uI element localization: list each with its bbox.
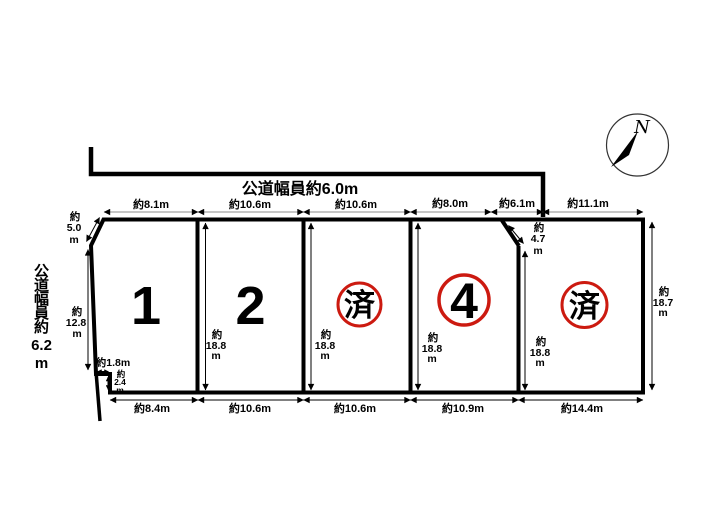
svg-text:6.2: 6.2 [31, 337, 52, 354]
dim-bottom-4: 約10.9m [442, 401, 484, 415]
svg-text:4: 4 [450, 273, 478, 329]
plot-2-number: 2 [235, 276, 265, 336]
svg-text:5.0: 5.0 [67, 222, 82, 234]
plot-layout-diagram: 約8.1m 約10.6m 約10.6m 約8.0m 約6.1m 約11.1m 約… [0, 0, 705, 525]
right-depth-dim-label: 約 18.7 m [653, 285, 674, 319]
svg-text:m: m [116, 385, 124, 395]
svg-text:m: m [658, 307, 667, 319]
dim-top-3: 約10.6m [335, 197, 377, 211]
nw-corner-dim-label: 約 5.0 m [67, 210, 82, 246]
dim-bottom-1: 約8.4m [134, 401, 170, 415]
compass: N [607, 114, 669, 176]
svg-text:済: 済 [569, 289, 601, 324]
svg-text:m: m [320, 350, 329, 362]
dim-bottom-3: 約10.6m [334, 401, 376, 415]
svg-text:4.7: 4.7 [531, 233, 546, 245]
dim-bottom-2: 約10.6m [229, 401, 271, 415]
plot-1-number: 1 [131, 276, 161, 336]
svg-text:m: m [72, 328, 81, 340]
plot-3-sold-stamp: 済 [338, 283, 381, 326]
svg-text:m: m [69, 234, 78, 246]
dim-top-6: 約11.1m [567, 196, 609, 210]
svg-text:m: m [427, 353, 436, 365]
step-width-dim-label: 約1.8m [96, 356, 130, 369]
svg-text:m: m [211, 350, 220, 362]
dim-top-1: 約8.1m [133, 197, 169, 211]
dim-top-2: 約10.6m [229, 197, 271, 211]
west-road-width-label: 公 道 幅 員 約 6.2 m [31, 263, 52, 372]
svg-text:m: m [535, 357, 544, 369]
west-road-edge [96, 375, 100, 421]
north-road-width-label: 公道幅員約6.0m [242, 179, 358, 198]
svg-text:約: 約 [34, 318, 49, 336]
dim-top-5: 約6.1m [499, 196, 535, 210]
north-label: N [633, 117, 651, 138]
svg-text:m: m [533, 245, 542, 257]
svg-text:済: 済 [344, 288, 376, 323]
dim-bottom-5: 約14.4m [561, 401, 603, 415]
dim-top-4: 約8.0m [432, 196, 468, 210]
left-depth-dim-label: 約 12.8 m [66, 305, 87, 340]
svg-text:m: m [35, 355, 48, 372]
